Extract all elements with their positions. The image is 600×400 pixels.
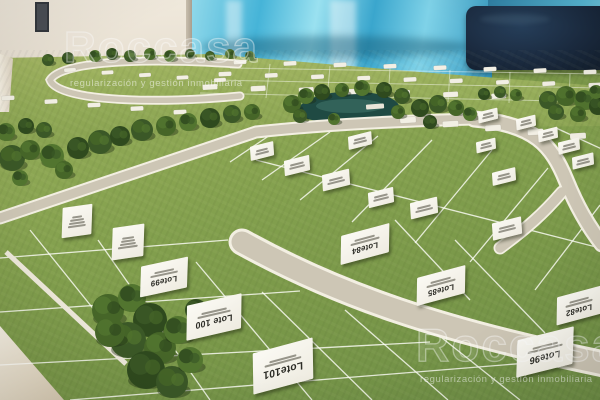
lot-sign-small (112, 224, 145, 261)
lot-sign-small (62, 204, 93, 239)
scale-model-photo: Lote84 Lote85 Lote82 Lote96 Lote99 Lote … (0, 0, 600, 400)
